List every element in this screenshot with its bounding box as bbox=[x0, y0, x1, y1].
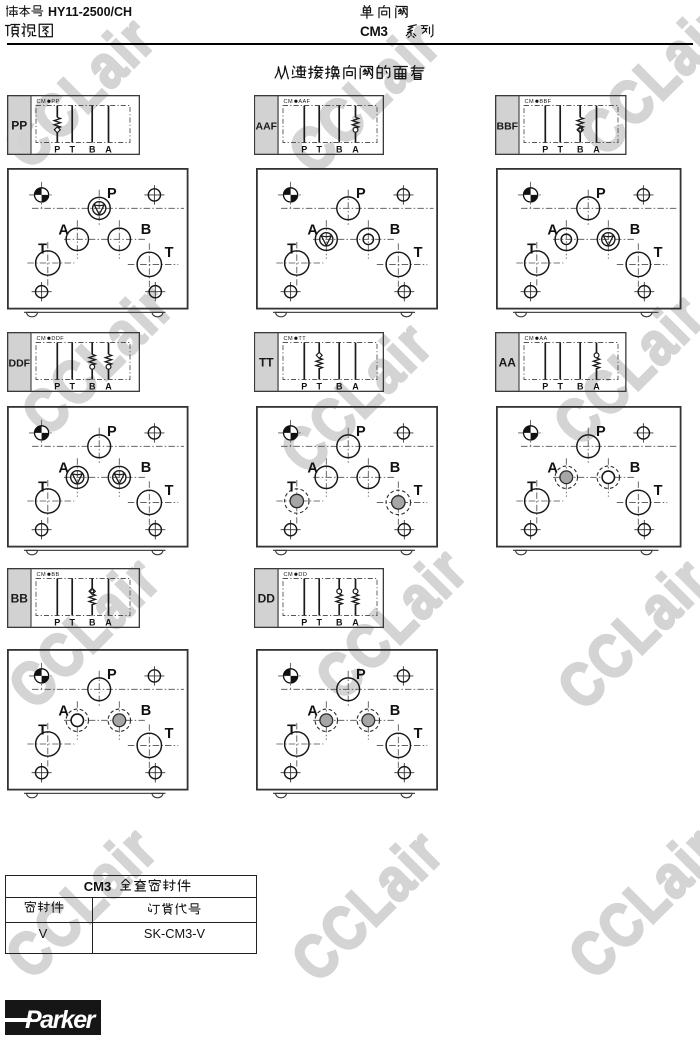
svg-text:B: B bbox=[390, 703, 400, 719]
svg-text:T: T bbox=[38, 479, 47, 495]
svg-text:T: T bbox=[316, 145, 322, 155]
svg-text:AA: AA bbox=[539, 336, 547, 342]
svg-text:AA: AA bbox=[499, 356, 517, 370]
svg-text:B: B bbox=[141, 703, 151, 719]
svg-text:P: P bbox=[54, 618, 60, 628]
svg-text:B: B bbox=[141, 222, 151, 238]
svg-text:DD: DD bbox=[298, 572, 307, 578]
svg-text:P: P bbox=[356, 667, 366, 683]
svg-text:T: T bbox=[38, 722, 47, 738]
svg-text:TT: TT bbox=[298, 336, 306, 342]
svg-text:T: T bbox=[287, 479, 296, 495]
svg-text:TT: TT bbox=[259, 356, 274, 370]
svg-text:B: B bbox=[390, 460, 400, 476]
svg-text:A: A bbox=[307, 461, 318, 477]
svg-text:A: A bbox=[105, 618, 112, 628]
svg-text:PP: PP bbox=[11, 119, 27, 133]
svg-text:T: T bbox=[316, 382, 322, 392]
svg-text:A: A bbox=[352, 145, 359, 155]
svg-text:A: A bbox=[547, 461, 558, 477]
svg-text:T: T bbox=[69, 382, 75, 392]
svg-text:T: T bbox=[38, 241, 47, 257]
svg-text:DDF: DDF bbox=[9, 358, 31, 370]
svg-text:B: B bbox=[336, 145, 343, 155]
svg-text:CM: CM bbox=[37, 99, 47, 105]
svg-text:A: A bbox=[105, 382, 112, 392]
svg-text:P: P bbox=[54, 382, 60, 392]
svg-text:T: T bbox=[165, 726, 174, 742]
svg-text:B: B bbox=[630, 222, 640, 238]
svg-text:P: P bbox=[542, 145, 548, 155]
svg-text:CM: CM bbox=[525, 336, 535, 342]
svg-text:T: T bbox=[414, 483, 423, 499]
svg-text:B: B bbox=[390, 222, 400, 238]
svg-text:A: A bbox=[58, 461, 69, 477]
svg-text:B: B bbox=[89, 145, 96, 155]
svg-text:P: P bbox=[301, 382, 307, 392]
svg-text:B: B bbox=[89, 618, 96, 628]
svg-text:P: P bbox=[542, 382, 548, 392]
svg-text:P: P bbox=[356, 186, 366, 202]
svg-text:CM: CM bbox=[37, 336, 47, 342]
svg-text:B: B bbox=[336, 618, 343, 628]
svg-text:CM: CM bbox=[284, 99, 294, 105]
svg-text:A: A bbox=[593, 145, 600, 155]
svg-text:BB: BB bbox=[11, 592, 29, 606]
svg-text:P: P bbox=[107, 424, 117, 440]
svg-text:A: A bbox=[105, 145, 112, 155]
svg-text:BB: BB bbox=[51, 572, 59, 578]
svg-text:T: T bbox=[316, 618, 322, 628]
svg-text:BBF: BBF bbox=[497, 121, 519, 133]
svg-text:T: T bbox=[287, 722, 296, 738]
svg-text:P: P bbox=[596, 424, 606, 440]
svg-text:A: A bbox=[547, 223, 558, 239]
svg-text:CM: CM bbox=[284, 572, 294, 578]
svg-text:T: T bbox=[557, 382, 563, 392]
svg-text:BBF: BBF bbox=[539, 99, 551, 105]
svg-text:DD: DD bbox=[258, 592, 276, 606]
svg-text:T: T bbox=[527, 241, 536, 257]
svg-text:A: A bbox=[593, 382, 600, 392]
svg-text:B: B bbox=[336, 382, 343, 392]
svg-text:CM: CM bbox=[37, 572, 47, 578]
svg-text:AAF: AAF bbox=[298, 99, 310, 105]
svg-text:P: P bbox=[107, 186, 117, 202]
svg-text:T: T bbox=[654, 245, 663, 261]
svg-text:A: A bbox=[58, 704, 69, 720]
svg-text:B: B bbox=[577, 382, 584, 392]
svg-text:B: B bbox=[141, 460, 151, 476]
svg-text:P: P bbox=[356, 424, 366, 440]
svg-text:T: T bbox=[165, 483, 174, 499]
svg-text:P: P bbox=[54, 145, 60, 155]
svg-text:T: T bbox=[414, 245, 423, 261]
svg-text:PP: PP bbox=[51, 99, 59, 105]
svg-text:A: A bbox=[307, 704, 318, 720]
svg-text:B: B bbox=[89, 382, 96, 392]
svg-text:CM: CM bbox=[284, 336, 294, 342]
svg-text:T: T bbox=[414, 726, 423, 742]
svg-text:T: T bbox=[557, 145, 563, 155]
svg-text:B: B bbox=[630, 460, 640, 476]
svg-text:A: A bbox=[352, 618, 359, 628]
svg-text:T: T bbox=[69, 145, 75, 155]
svg-text:A: A bbox=[352, 382, 359, 392]
svg-text:T: T bbox=[654, 483, 663, 499]
svg-text:A: A bbox=[58, 223, 69, 239]
svg-text:B: B bbox=[577, 145, 584, 155]
svg-text:T: T bbox=[165, 245, 174, 261]
svg-text:P: P bbox=[301, 618, 307, 628]
svg-text:CM: CM bbox=[525, 99, 535, 105]
svg-text:A: A bbox=[307, 223, 318, 239]
svg-text:DDF: DDF bbox=[51, 336, 64, 342]
svg-text:P: P bbox=[596, 186, 606, 202]
svg-text:T: T bbox=[69, 618, 75, 628]
svg-text:AAF: AAF bbox=[256, 121, 278, 133]
svg-text:P: P bbox=[301, 145, 307, 155]
svg-text:P: P bbox=[107, 667, 117, 683]
svg-text:T: T bbox=[287, 241, 296, 257]
svg-text:T: T bbox=[527, 479, 536, 495]
